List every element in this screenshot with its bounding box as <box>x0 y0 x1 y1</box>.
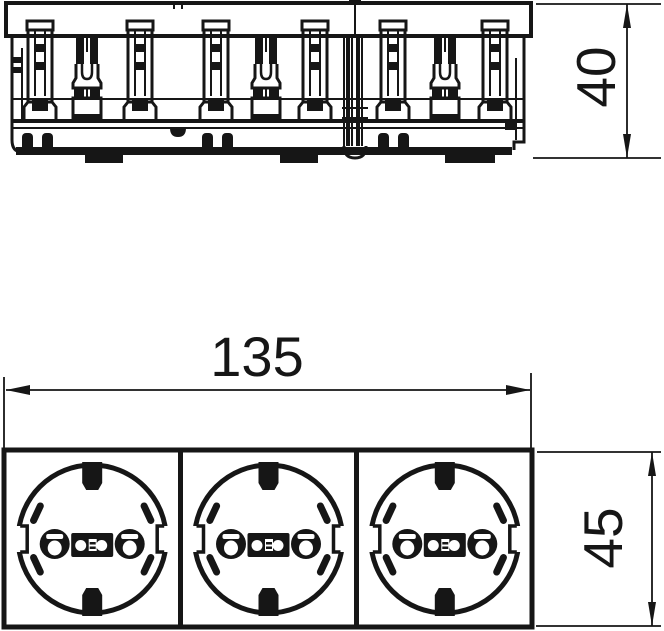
width-dimension-label: 135 <box>210 325 303 388</box>
socket-1 <box>13 462 171 616</box>
socket-module-drawing: 40 135 45 <box>0 0 664 631</box>
arrowhead-right <box>506 385 530 395</box>
rail-tab <box>170 128 186 137</box>
housing-cap <box>6 3 531 36</box>
dimension-height-45: 45 <box>536 452 661 626</box>
technical-drawing-canvas: 40 135 45 <box>0 0 664 631</box>
dimension-width-135: 135 <box>4 325 531 449</box>
dimension-depth-40: 40 <box>533 4 661 158</box>
arrowhead-down <box>623 134 631 158</box>
cap-seam <box>350 1 360 36</box>
height-dimension-label: 45 <box>572 507 634 568</box>
depth-dimension-label: 40 <box>565 46 627 107</box>
arrowhead-down <box>648 602 656 626</box>
body-left-edge <box>12 36 22 152</box>
module-coupling <box>342 36 368 158</box>
front-view-drawing <box>4 450 532 627</box>
arrowhead-left <box>6 385 30 395</box>
socket-3 <box>366 462 524 616</box>
arrowhead-up <box>623 4 631 28</box>
socket-2 <box>190 462 348 616</box>
bottom-bar <box>16 147 512 155</box>
arrowhead-up <box>648 452 656 476</box>
top-view-drawing <box>6 1 531 163</box>
